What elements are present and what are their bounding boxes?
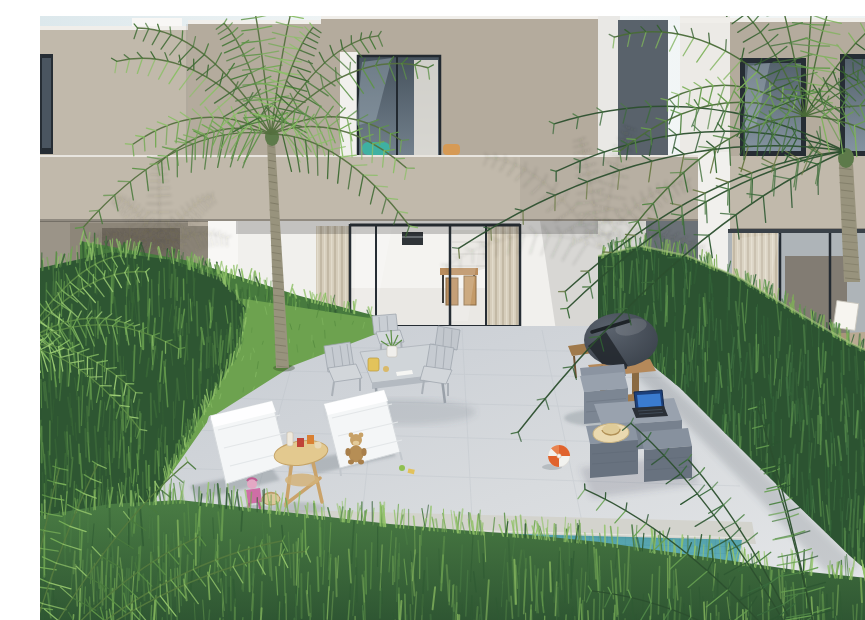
balcony-curtain [414, 60, 438, 155]
left-villa-window-glass [42, 58, 51, 148]
bottle [287, 432, 293, 446]
pitcher [368, 358, 379, 371]
cup [383, 366, 389, 372]
white-side-wall [680, 16, 730, 156]
roof-fascia [321, 16, 598, 19]
curtain-right [486, 226, 520, 326]
balcony-chair-orange [443, 144, 460, 155]
parapet-coping [40, 155, 698, 157]
orange-cup [307, 435, 314, 444]
bowl [315, 442, 322, 449]
red-cup [297, 438, 304, 447]
render-canvas [40, 16, 865, 620]
beach-ball [548, 445, 570, 467]
laptop [632, 390, 668, 418]
balcony-chair-teal [362, 142, 390, 155]
architectural-render: 3D architectural rendering, elevated vie… [40, 16, 865, 620]
